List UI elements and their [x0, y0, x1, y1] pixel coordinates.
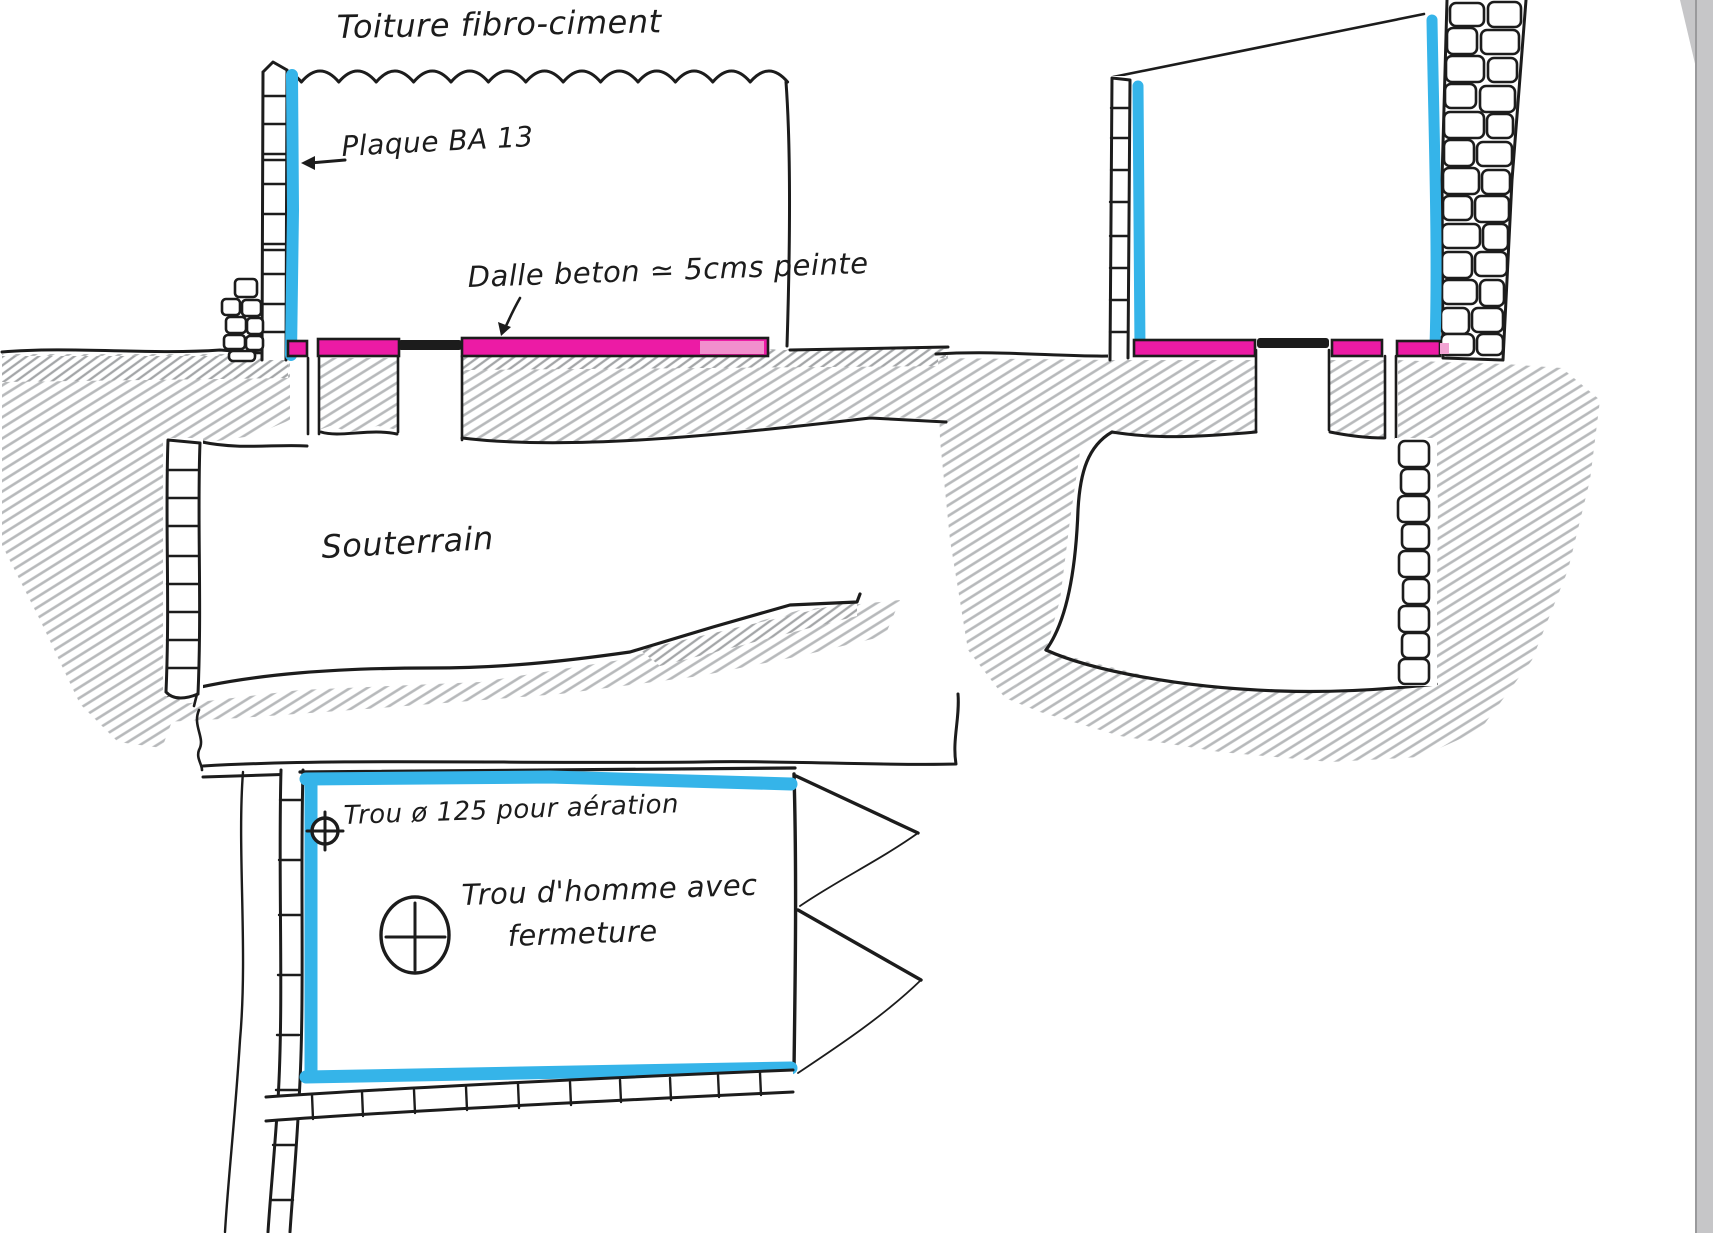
- slab-right-seg1: [1134, 340, 1255, 356]
- manhole-label-line1: Trou d'homme avec: [461, 868, 758, 912]
- cyan-line-rubble-wall: [1432, 20, 1436, 346]
- vent-label: Trou ø 125 pour aération: [343, 789, 679, 831]
- chevron-break-marks: [796, 776, 921, 1073]
- basement-label: Souterrain: [320, 519, 494, 566]
- chevron-2: [798, 910, 921, 980]
- plasterboard-label: Plaque BA 13: [341, 120, 535, 163]
- scanned-sketch-page: Toiture fibro-ciment Plaque BA 13 Dalle …: [0, 0, 1713, 1233]
- rubble-stone-wall: [1441, 0, 1526, 360]
- opening-cover-black: [398, 340, 462, 350]
- slab-right-seg2: [1332, 340, 1382, 356]
- manhole-label-line2: fermeture: [507, 914, 658, 953]
- chevron-1-return: [800, 833, 918, 906]
- tank-cyan-top: [306, 777, 791, 784]
- cavity-ceiling-b: [321, 432, 397, 434]
- manhole-shaft-lines: [398, 356, 462, 440]
- earth-left-bank: [2, 354, 290, 748]
- plasterboard-cyan-line: [291, 75, 293, 355]
- cavity-stone-column: [1395, 438, 1437, 686]
- slab-segment-b: [318, 339, 399, 356]
- slab-right-smear: [1440, 343, 1449, 354]
- slab-fade-overlay: [700, 341, 764, 354]
- tank-right-edge: [794, 774, 796, 1070]
- basement-stone-wall: [163, 438, 203, 698]
- cavity-ceiling-a: [202, 442, 307, 446]
- chevron-1: [796, 776, 918, 833]
- scan-edge-shadow: [1680, 0, 1713, 1233]
- room-right-edge: [786, 82, 790, 346]
- cyan-line-left-column: [1138, 86, 1140, 350]
- slab-right-seg3: [1397, 341, 1440, 356]
- slab-arrow: [505, 298, 520, 328]
- manhole-symbol: [381, 897, 449, 973]
- labels: Toiture fibro-ciment Plaque BA 13 Dalle …: [320, 2, 869, 953]
- plan-long-wall: [225, 770, 303, 1232]
- painted-slab-left: [288, 338, 768, 356]
- earth-hatching: [2, 347, 1600, 762]
- chevron-2-return: [798, 980, 921, 1073]
- ground-line-right-drawing: [936, 353, 1110, 356]
- earth-right-drawing-left-arm: [938, 358, 1110, 698]
- roof-label: Toiture fibro-ciment: [336, 2, 662, 46]
- vent-shaft-lines: [308, 358, 319, 434]
- roof-sloped-line: [1113, 14, 1424, 77]
- right-drawing-left-column: [1108, 76, 1132, 360]
- left-wall-stone-column: [262, 62, 288, 360]
- earth-right-drawing-top-b: [1330, 360, 1384, 438]
- slab-label: Dalle beton ≃ 5cms peinte: [467, 246, 869, 294]
- sketch-canvas: Toiture fibro-ciment Plaque BA 13 Dalle …: [0, 0, 1713, 1233]
- slab-segment-a: [288, 341, 307, 356]
- plasterboard-arrow: [310, 160, 345, 163]
- ground-line-left: [2, 350, 263, 353]
- plan-view-drawing: [194, 694, 958, 1232]
- annotation-arrows: [301, 156, 520, 336]
- opening-cover-black-right: [1257, 338, 1329, 348]
- slab-arrowhead: [498, 322, 511, 336]
- earth-right-drawing-top-a: [1110, 360, 1256, 438]
- earth-middle-pillar: [319, 358, 398, 432]
- rubble-pier: [222, 279, 263, 361]
- plasterboard-arrowhead: [301, 156, 315, 170]
- roof-wavy-line: [264, 71, 788, 82]
